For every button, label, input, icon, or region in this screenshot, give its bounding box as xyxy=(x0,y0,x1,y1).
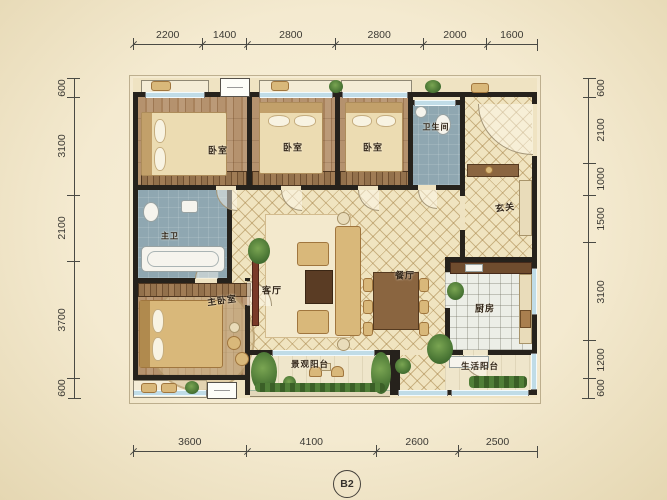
dimension-row-bottom: 3600410026002500 xyxy=(133,426,537,452)
planter-hedge xyxy=(255,383,385,392)
dim-segment: 1400 xyxy=(202,19,246,45)
dim-value: 1000 xyxy=(595,168,607,191)
dim-value: 3700 xyxy=(56,309,68,332)
head xyxy=(140,301,150,367)
dim-value: 2800 xyxy=(279,29,302,41)
wall xyxy=(460,97,465,163)
stove xyxy=(520,310,531,328)
window xyxy=(259,92,333,98)
dim-value: 600 xyxy=(56,380,68,398)
window xyxy=(531,353,537,390)
balcony-chair xyxy=(331,366,344,377)
room-label-bedroom3: 卧室 xyxy=(363,141,383,154)
dim-segment: 4100 xyxy=(247,426,376,452)
dining-chair xyxy=(363,278,373,292)
wall xyxy=(236,185,281,190)
dim-value: 2100 xyxy=(56,217,68,240)
wall xyxy=(133,92,138,380)
dimension-column-left: 600310021003700600 xyxy=(50,78,75,398)
wall xyxy=(138,185,216,190)
planter-hedge xyxy=(469,376,527,388)
pil xyxy=(352,115,372,127)
kitchen-cabinet xyxy=(519,274,532,344)
cushion xyxy=(141,383,157,393)
dim-value: 3100 xyxy=(595,280,607,303)
plant xyxy=(447,282,464,300)
window xyxy=(272,350,375,356)
plan-code: B2 xyxy=(340,478,353,490)
dim-value: 3600 xyxy=(178,436,201,448)
dim-value: 3100 xyxy=(56,134,68,157)
wall xyxy=(138,278,195,283)
window xyxy=(342,92,408,98)
room-label-bathroom: 卫生间 xyxy=(423,122,450,133)
plant xyxy=(185,381,199,394)
dim-value: 2200 xyxy=(156,29,179,41)
armchair xyxy=(297,310,329,334)
kitchen-counter xyxy=(450,262,532,274)
wall xyxy=(217,278,232,283)
dim-value: 2500 xyxy=(486,436,509,448)
dim-segment: 3100 xyxy=(588,243,613,341)
decor xyxy=(151,81,171,91)
plant xyxy=(248,238,270,264)
sofa xyxy=(335,226,361,336)
dim-segment: 2800 xyxy=(335,19,423,45)
dim-segment: 3600 xyxy=(133,426,247,452)
head xyxy=(260,103,322,113)
dimension-row-top: 220014002800280020001600 xyxy=(133,19,537,45)
dim-value: 2600 xyxy=(405,436,428,448)
dim-value: 1600 xyxy=(500,29,523,41)
foyer-cabinet xyxy=(467,164,519,177)
pil xyxy=(268,115,290,127)
dim-segment: 600 xyxy=(50,78,75,97)
plant xyxy=(427,334,453,364)
dim-segment: 2100 xyxy=(50,195,75,262)
dim-segment: 2100 xyxy=(588,97,613,164)
cushion xyxy=(161,383,177,393)
wall xyxy=(460,163,465,196)
div xyxy=(147,251,219,267)
dim-segment: 600 xyxy=(588,379,613,398)
dim-value: 600 xyxy=(595,79,607,97)
bathtub xyxy=(141,246,225,272)
room-label-view-balcony: 景观阳台 xyxy=(291,358,329,370)
dim-segment: 3700 xyxy=(50,262,75,379)
dim-value: 1200 xyxy=(595,348,607,371)
window xyxy=(451,390,529,396)
wall xyxy=(408,97,413,185)
dim-segment: 3100 xyxy=(50,97,75,195)
dim-value: 1500 xyxy=(595,207,607,230)
pil xyxy=(376,115,396,127)
ac-platform xyxy=(207,382,237,399)
dim-segment: 2000 xyxy=(423,19,486,45)
wardrobe xyxy=(340,171,409,186)
room-label-master-bath: 主卫 xyxy=(161,231,179,242)
floorplan: 卧室 卧室 卧室 卫生间 玄关 主卫 主卧室 客厅 餐厅 厨房 景观阳台 生活阳… xyxy=(133,78,537,398)
bed xyxy=(259,102,323,174)
room-label-foyer: 玄关 xyxy=(494,199,516,215)
dim-value: 2000 xyxy=(443,29,466,41)
dim-value: 1400 xyxy=(213,29,236,41)
floorplan-canvas: 220014002800280020001600 360041002600250… xyxy=(0,0,667,500)
dim-segment: 1000 xyxy=(588,164,613,196)
dim-segment: 2800 xyxy=(247,19,335,45)
ac-platform xyxy=(220,78,250,97)
room-label-living-room: 客厅 xyxy=(262,284,282,297)
room-label-service-balcony: 生活阳台 xyxy=(461,360,499,372)
plant xyxy=(425,80,441,93)
decor xyxy=(471,83,489,93)
dimension-column-right: 60021001000150031001200600 xyxy=(588,78,613,398)
dim-segment: 600 xyxy=(588,78,613,97)
dim-segment: 2600 xyxy=(376,426,458,452)
toilet xyxy=(143,202,159,222)
dining-chair xyxy=(419,278,429,292)
kitchen-sink xyxy=(465,264,483,272)
wall xyxy=(335,97,340,190)
pil xyxy=(154,119,166,143)
dim-segment: 2200 xyxy=(133,19,202,45)
pil xyxy=(154,147,166,171)
dim-value: 4100 xyxy=(300,436,323,448)
dining-chair xyxy=(419,322,429,336)
armchair xyxy=(297,242,329,266)
armchair xyxy=(235,352,249,366)
plant xyxy=(395,358,411,374)
plant xyxy=(329,80,343,93)
pil xyxy=(294,115,316,127)
decor xyxy=(271,81,289,91)
wall xyxy=(378,185,418,190)
dim-value: 2800 xyxy=(368,29,391,41)
wall xyxy=(488,350,532,355)
vase xyxy=(485,166,493,174)
window xyxy=(398,390,448,396)
pil xyxy=(152,337,164,361)
side-table xyxy=(337,338,350,351)
dim-segment: 2500 xyxy=(458,426,537,452)
plan-code-badge: B2 xyxy=(333,470,361,498)
room-label-bedroom2: 卧室 xyxy=(283,141,303,154)
dim-segment: 600 xyxy=(50,379,75,398)
dim-value: 600 xyxy=(56,79,68,97)
dining-chair xyxy=(363,322,373,336)
tv-cabinet xyxy=(252,260,259,326)
dim-value: 600 xyxy=(595,380,607,398)
head xyxy=(346,103,402,113)
wall xyxy=(301,185,358,190)
head xyxy=(142,113,152,175)
room-bathroom-floor xyxy=(408,105,460,185)
dim-segment: 1500 xyxy=(588,195,613,243)
side-table xyxy=(229,322,240,333)
dining-chair xyxy=(363,300,373,314)
sink xyxy=(415,106,427,118)
wall xyxy=(247,97,252,190)
window xyxy=(145,92,205,98)
dining-chair xyxy=(419,300,429,314)
room-label-bedroom1: 卧室 xyxy=(208,144,228,157)
dim-value: 2100 xyxy=(595,119,607,142)
coffee-table xyxy=(305,270,333,304)
armchair xyxy=(227,336,241,350)
pil xyxy=(152,309,164,333)
bed xyxy=(139,300,223,368)
sink xyxy=(181,200,198,213)
dim-segment: 1200 xyxy=(588,341,613,379)
shoe-cabinet xyxy=(519,180,532,236)
room-label-kitchen: 厨房 xyxy=(475,302,495,315)
room-label-dining-room: 餐厅 xyxy=(395,269,415,282)
wall xyxy=(532,92,537,104)
wall xyxy=(133,375,250,380)
dim-segment: 1600 xyxy=(487,19,538,45)
bed xyxy=(345,102,403,172)
side-table xyxy=(337,212,350,225)
